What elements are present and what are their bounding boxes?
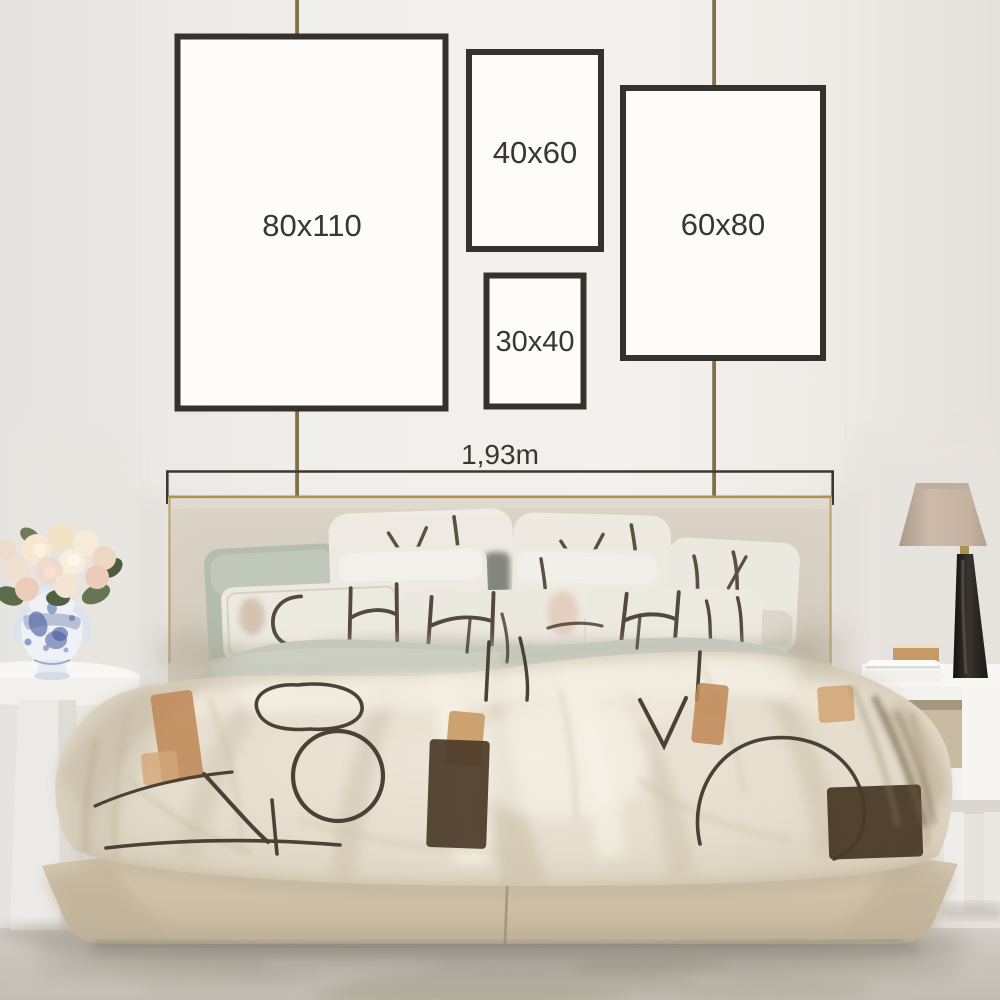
- svg-text:40x60: 40x60: [493, 135, 577, 170]
- svg-text:1,93m: 1,93m: [461, 439, 539, 470]
- svg-text:80x110: 80x110: [262, 208, 361, 243]
- svg-text:60x80: 60x80: [681, 207, 765, 242]
- svg-text:30x40: 30x40: [495, 326, 574, 358]
